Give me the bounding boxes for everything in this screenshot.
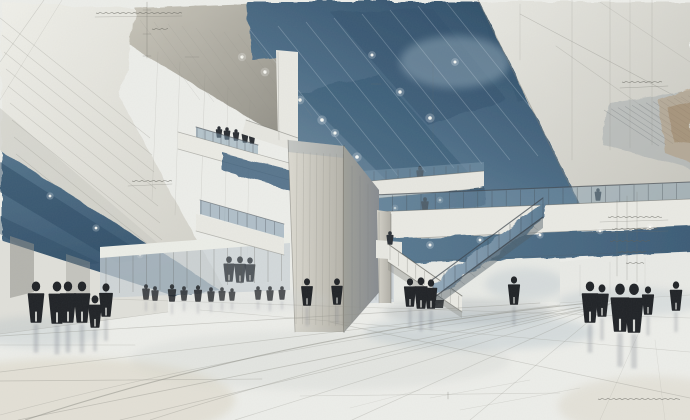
paper-grain-texture bbox=[0, 0, 690, 420]
architectural-rendering: Watercolor and pencil architectural pers… bbox=[0, 0, 690, 420]
artwork-canvas bbox=[0, 0, 690, 420]
